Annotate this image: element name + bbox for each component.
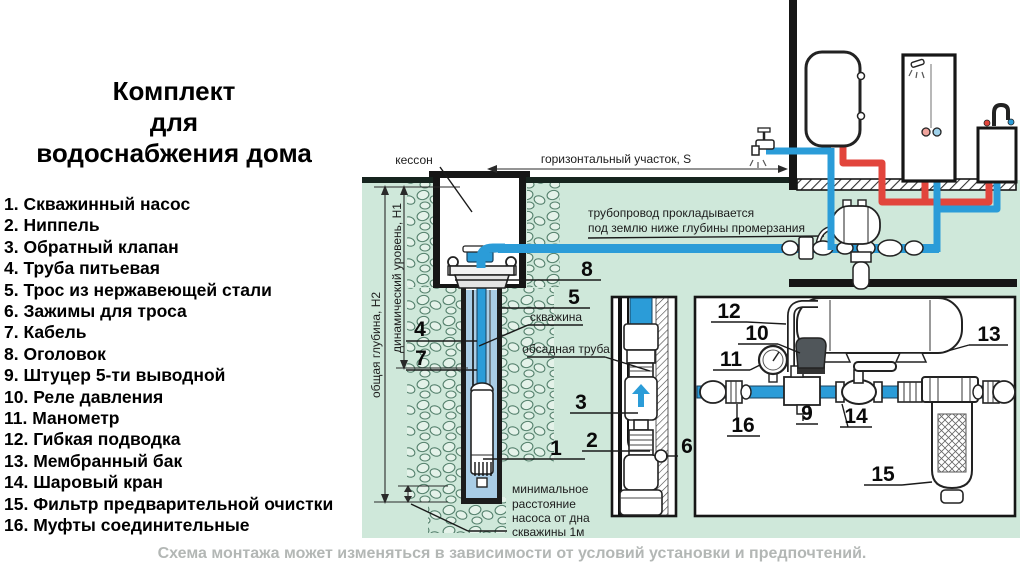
shower-cabin <box>903 55 955 181</box>
pump-detail-panel <box>612 297 676 516</box>
dimension-s <box>487 165 788 173</box>
part-number-1: 1 <box>550 437 562 460</box>
part-number-13: 13 <box>977 323 1000 346</box>
connector-sleeve <box>898 382 922 402</box>
part-number-8: 8 <box>581 258 593 281</box>
valve-handle <box>854 362 896 371</box>
annotation-dynamic-level: динамический уровень, H1 <box>390 203 404 353</box>
shower-cold-valve <box>933 128 941 136</box>
boiler <box>806 52 865 146</box>
annotation-min-dist-2: расстояние <box>512 497 576 511</box>
basement-bottom <box>789 279 1017 287</box>
annotation-casing-pipe: обсадная труба <box>522 342 610 356</box>
annotation-pipeline-note-2: под землю ниже глубины промерзания <box>588 221 805 235</box>
shower-hot-valve <box>922 128 930 136</box>
faucet-icon <box>994 105 1008 126</box>
part-number-4: 4 <box>414 318 426 341</box>
part-number-11: 11 <box>720 348 743 371</box>
outdoor-tap <box>750 128 774 168</box>
infographic: Комплект для водоснабжения дома 1. Скваж… <box>0 0 1024 576</box>
part-number-6: 6 <box>681 435 693 458</box>
annotation-kesson: кессон <box>395 153 433 167</box>
ground-line-left <box>362 177 433 183</box>
house-wall <box>789 0 797 190</box>
annotation-min-dist-4: скважины 1м <box>512 525 584 539</box>
annotation-pipeline-note-1: трубопровод прокладывается <box>588 206 754 220</box>
sink <box>978 105 1016 182</box>
footer-note: Схема монтажа может изменяться в зависим… <box>0 545 1024 563</box>
part-number-9: 9 <box>801 402 813 425</box>
annotation-min-dist-3: насоса от дна <box>512 511 590 525</box>
pressure-relay <box>796 338 826 374</box>
part-number-2: 2 <box>586 429 598 452</box>
station-filter <box>851 252 871 289</box>
cable-clamp <box>655 450 667 462</box>
submersible-pump <box>471 383 493 487</box>
annotation-total-depth: общая глубина, H2 <box>369 292 383 398</box>
part-number-10: 10 <box>745 322 768 345</box>
part-number-15: 15 <box>871 463 895 486</box>
annotation-min-dist-1: минимальное <box>512 482 589 496</box>
part-number-7: 7 <box>415 347 427 370</box>
annotation-horizontal-run: горизонтальный участок, S <box>541 152 691 166</box>
part-number-5: 5 <box>568 286 580 309</box>
ground-line-right <box>526 177 790 183</box>
part-number-12: 12 <box>717 300 740 323</box>
part-number-3: 3 <box>575 391 587 414</box>
part-number-14: 14 <box>844 405 868 428</box>
annotation-well: скважина <box>530 310 583 324</box>
part-number-16: 16 <box>731 414 754 437</box>
installation-scheme: кессонгоризонтальный участок, Sтрубопров… <box>0 0 1024 576</box>
